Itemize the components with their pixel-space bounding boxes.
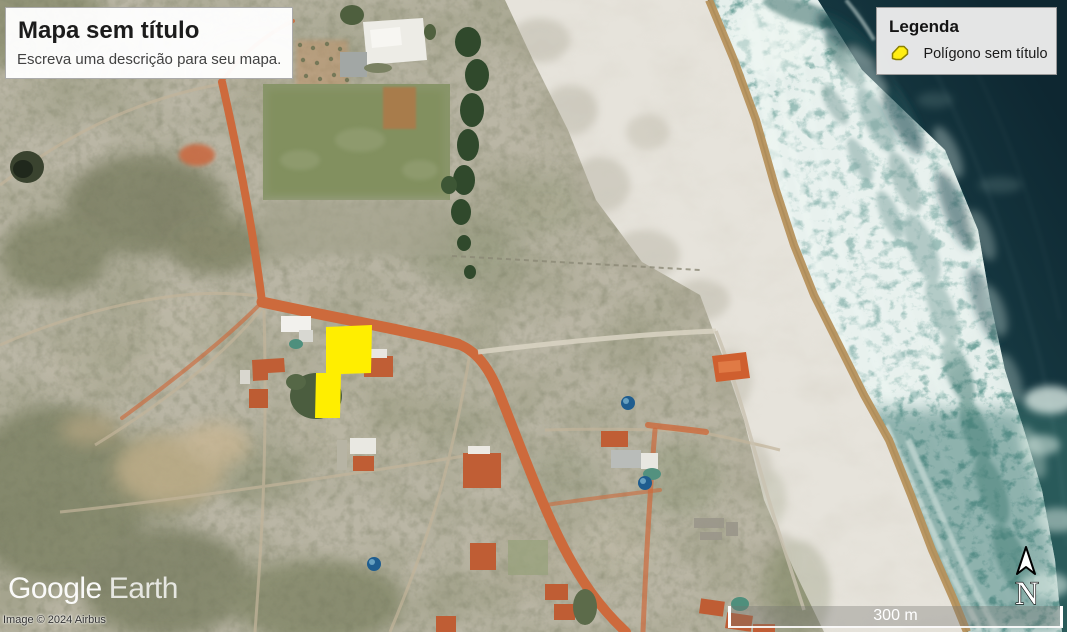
- svg-text:N: N: [1015, 576, 1039, 610]
